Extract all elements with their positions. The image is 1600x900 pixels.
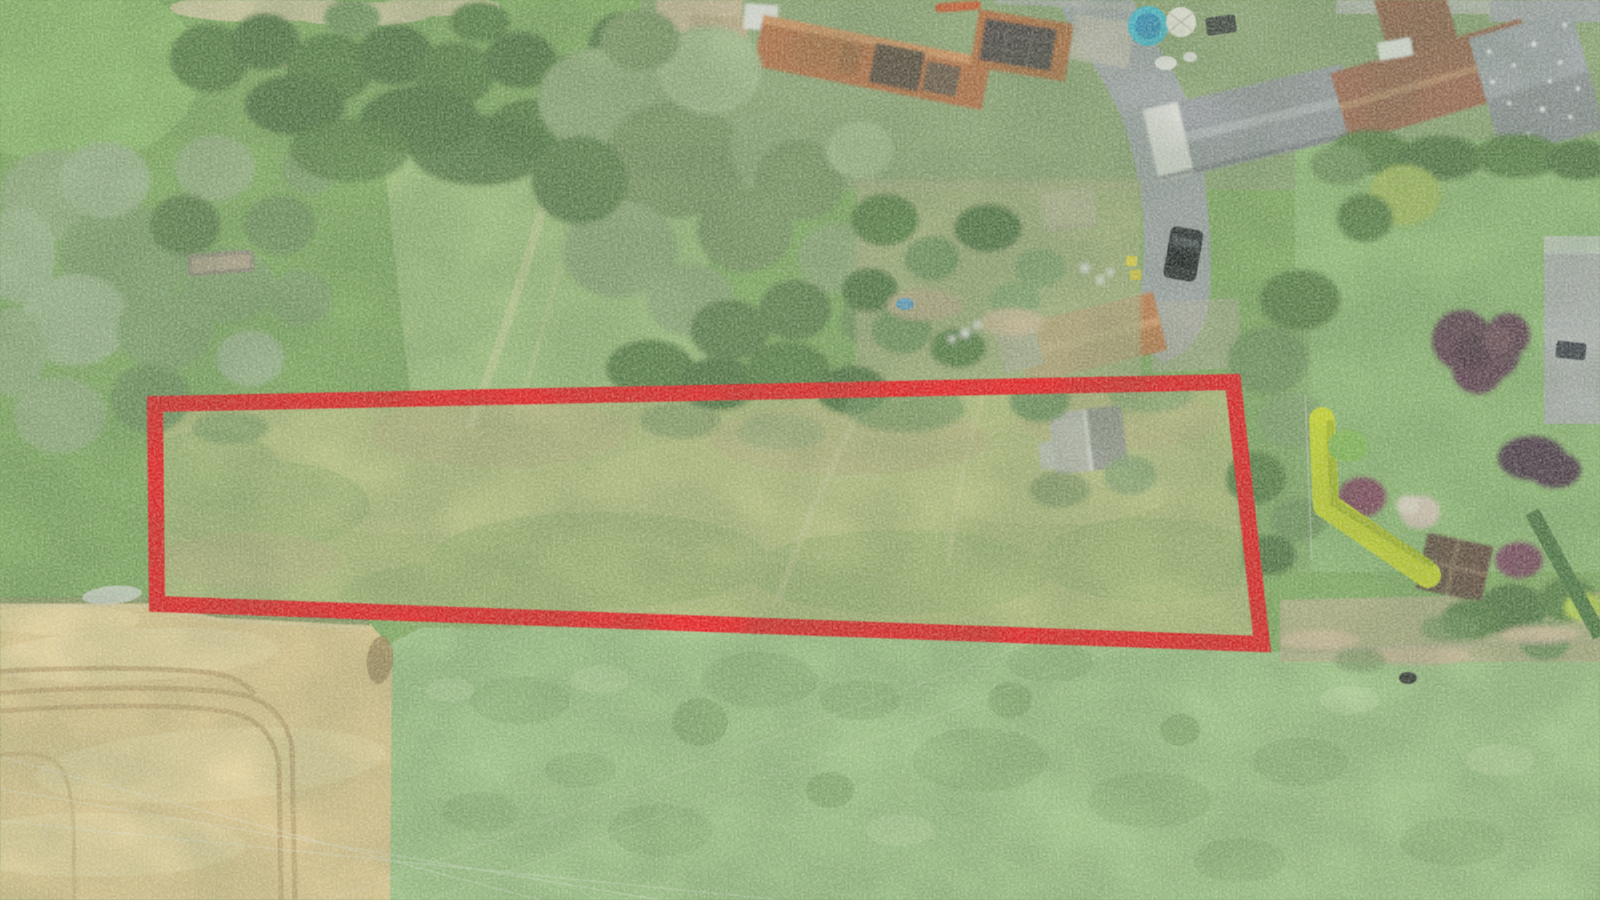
grain-overlay: [0, 0, 1600, 900]
aerial-photo: [0, 0, 1600, 900]
